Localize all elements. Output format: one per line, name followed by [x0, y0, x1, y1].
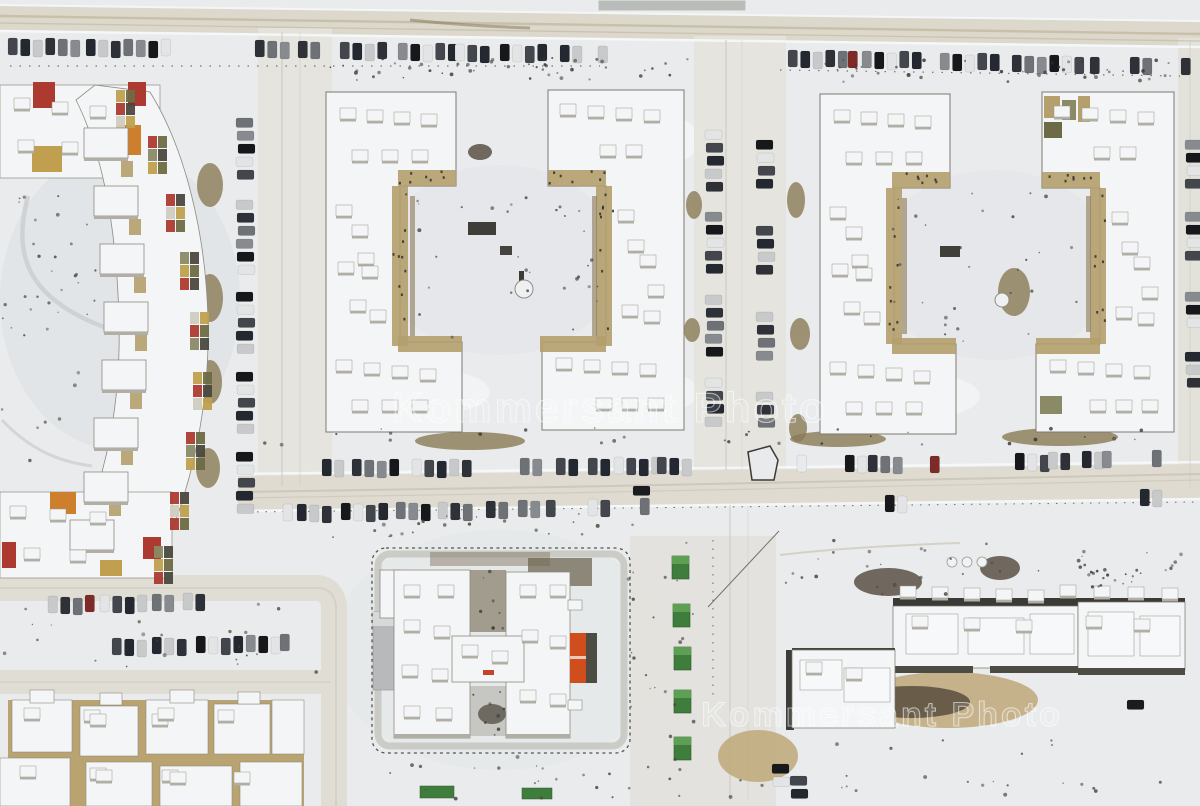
facade-base-dirt — [592, 196, 597, 336]
red-marker — [483, 670, 494, 675]
south-court-mud — [478, 704, 506, 724]
red-accent — [2, 542, 16, 568]
brown-facade-patch — [1044, 122, 1062, 138]
flat-roof-structure-top — [598, 0, 746, 11]
storage-dome — [977, 557, 987, 567]
facade-strip — [596, 186, 612, 346]
utility-hut — [748, 446, 778, 480]
north-court — [470, 570, 506, 632]
courtyard-shading — [875, 170, 1115, 360]
h-crossbar — [452, 636, 524, 682]
facade-strip — [892, 338, 956, 354]
facade-base-dirt — [1086, 196, 1091, 332]
red-accent — [33, 82, 55, 108]
facade-strip — [548, 170, 606, 186]
facade-strip — [892, 172, 950, 188]
gold-accent — [32, 146, 62, 172]
dome-structure — [515, 280, 533, 298]
right-street — [1178, 38, 1200, 490]
dark-court — [586, 633, 597, 683]
facade-strip — [1090, 188, 1106, 344]
facade-strip — [1036, 338, 1100, 354]
left-street — [258, 28, 332, 488]
facade-strip — [392, 186, 408, 346]
aerial-photo: Kommersant Photo Kommersant Photo — [0, 0, 1200, 806]
facade-base-dirt — [902, 198, 907, 334]
facade-strip — [540, 336, 606, 352]
watermark-bottom: Kommersant Photo — [701, 696, 1063, 734]
facade-strip — [1042, 172, 1100, 188]
facade-base-dirt — [410, 196, 415, 336]
watermark-center: Kommersant Photo — [392, 384, 827, 431]
facade-strip — [886, 188, 902, 344]
southwest-lowrise-complex — [0, 690, 304, 806]
courtyard-shading — [380, 165, 620, 355]
storage-dome — [962, 557, 972, 567]
brown-facade-patch — [1040, 396, 1062, 414]
storage-dome — [947, 557, 957, 567]
gold-accent — [100, 560, 122, 576]
